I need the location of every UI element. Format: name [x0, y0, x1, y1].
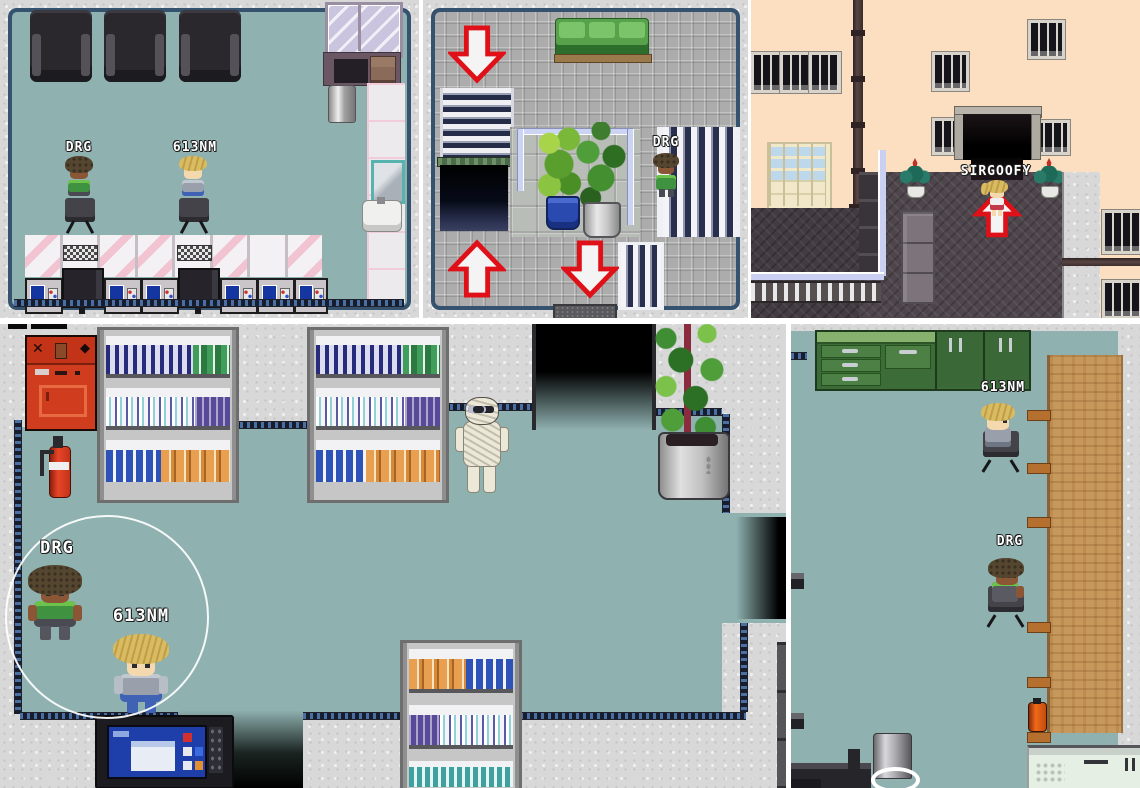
npc-mummy[interactable]	[455, 397, 507, 497]
extinguisher-valve	[53, 436, 63, 448]
extinguisher-valve	[1033, 698, 1041, 704]
stool-peg[interactable]	[1027, 517, 1051, 528]
exit-arrow-down-icon[interactable]	[561, 239, 619, 299]
chair-leg	[85, 220, 94, 234]
hair	[179, 156, 207, 171]
products-books	[106, 345, 193, 374]
hair	[981, 403, 1015, 421]
armchair	[30, 10, 92, 82]
player-613nm[interactable]	[176, 156, 210, 234]
desk-kneehole	[334, 59, 368, 83]
hair	[988, 558, 1024, 578]
wooden-table	[1047, 355, 1123, 733]
office-chair	[179, 198, 209, 222]
window	[751, 52, 783, 93]
panel-lobby: DRG	[423, 0, 748, 318]
fire-extinguisher	[1028, 702, 1047, 732]
armrest	[181, 34, 190, 76]
shelf-row	[106, 388, 230, 430]
desk	[323, 52, 401, 86]
player-sirgoofy[interactable]	[983, 180, 1011, 222]
door-handle	[949, 338, 952, 352]
machine-slot	[55, 371, 67, 375]
frame-top	[423, 0, 748, 9]
screen-bar	[113, 731, 129, 737]
drawer	[821, 359, 881, 372]
cabinet-doors	[937, 332, 983, 387]
products-purple	[409, 715, 440, 745]
machine-slot	[75, 371, 80, 375]
body	[990, 198, 1004, 210]
sofa-cushion	[619, 22, 645, 38]
doormat	[553, 304, 617, 318]
machine-valve	[55, 343, 67, 359]
player-drg[interactable]	[651, 153, 681, 197]
products-purple	[195, 397, 230, 426]
stacked-crates	[901, 210, 935, 304]
player-613nm[interactable]	[973, 403, 1025, 473]
player-label: 613NM	[173, 140, 217, 155]
plant-pot	[1041, 186, 1059, 198]
body	[985, 427, 1011, 447]
products-books	[316, 397, 405, 426]
ponytail	[981, 183, 989, 195]
body	[68, 180, 90, 196]
player-drg[interactable]	[980, 558, 1032, 628]
chair-leg	[66, 220, 75, 234]
door-lower-panes	[769, 180, 826, 206]
player-label: DRG	[997, 534, 1023, 549]
panel-store: ✕ ◆	[0, 324, 786, 788]
products-purple	[405, 397, 440, 426]
railing-right	[628, 129, 633, 225]
trash-can	[328, 85, 356, 123]
cross-icon: ✕	[32, 341, 44, 357]
chair-leg	[982, 459, 992, 472]
keyboard	[177, 245, 212, 261]
player-label: 613NM	[981, 380, 1025, 395]
entrance-column	[1031, 114, 1041, 160]
products-books	[106, 397, 195, 426]
lab-machine	[294, 278, 328, 314]
roof-pipe-vertical	[878, 150, 886, 276]
stool-peg[interactable]	[1027, 677, 1051, 688]
chair-leg	[199, 220, 208, 234]
drawer-latch	[46, 392, 49, 401]
vision-circle	[5, 515, 209, 719]
desk-drawers	[370, 56, 396, 84]
body	[182, 180, 204, 196]
sink	[362, 200, 402, 232]
player-label: DRG	[653, 135, 679, 150]
machine-handle	[35, 369, 49, 375]
desk-segment	[25, 235, 63, 277]
green-sofa	[555, 18, 649, 58]
entrance-doorway[interactable]	[963, 114, 1031, 160]
drawer	[821, 345, 881, 358]
folding-door	[767, 142, 832, 212]
armrest	[106, 34, 115, 76]
sidewalk-strip	[1062, 172, 1100, 318]
screen-button-blue	[195, 747, 203, 756]
appliance-counter[interactable]	[1027, 745, 1140, 788]
doorway-top[interactable]	[532, 324, 656, 430]
mummy-leg	[483, 463, 496, 493]
drawer-handle	[842, 349, 858, 353]
leg	[668, 189, 674, 197]
drawer	[821, 373, 881, 386]
plant-pot	[907, 186, 925, 198]
frame-right	[739, 0, 748, 318]
shelf-row	[409, 649, 513, 693]
products-packages	[161, 450, 230, 482]
armchair	[179, 10, 241, 82]
railing-left	[518, 129, 523, 191]
escalator-pit	[440, 165, 508, 231]
pot-soil	[666, 434, 718, 446]
armchair	[104, 10, 166, 82]
desk-segment	[288, 235, 323, 277]
lab-machine	[220, 278, 258, 314]
frame-left	[0, 0, 9, 318]
sofa-base	[554, 54, 652, 63]
player-label: SIRGOOFY	[961, 164, 1032, 179]
pipe-joint	[851, 30, 865, 36]
body	[992, 582, 1018, 602]
wall-stub	[791, 713, 804, 729]
fire-extinguisher	[40, 436, 74, 498]
products-green	[193, 345, 230, 374]
appliance-handle	[1132, 758, 1135, 771]
mummy-leg	[467, 463, 480, 493]
armrest	[32, 34, 41, 76]
chair-leg	[1015, 614, 1025, 627]
sofa-cushion	[559, 22, 585, 38]
hair	[65, 156, 93, 173]
plant-leaves	[1034, 166, 1064, 188]
console-terminal[interactable]	[95, 715, 234, 788]
panel-office: 613NM DRG	[791, 324, 1140, 788]
pipe-joint	[851, 76, 865, 82]
wall-stub	[791, 573, 804, 589]
panel-salon: DRG 613NM	[0, 0, 419, 318]
drawer-handle	[899, 350, 917, 354]
shelf-row	[106, 440, 230, 482]
shelf-row	[106, 336, 230, 378]
sofa-cushion	[589, 22, 615, 38]
escalator-lower[interactable]	[618, 242, 664, 310]
leg	[992, 210, 996, 216]
hair	[986, 180, 1008, 193]
stool-peg[interactable]	[1027, 732, 1051, 743]
pot-dots	[706, 456, 711, 474]
wide-drawer	[885, 345, 931, 369]
roof-fence	[751, 281, 881, 303]
door-glass-panes	[769, 144, 826, 180]
window	[1028, 20, 1065, 59]
appliance-handle	[1125, 758, 1128, 771]
shelf-row	[409, 761, 513, 787]
roof-pipe-horizontal	[751, 272, 884, 280]
leg	[659, 189, 665, 197]
drawer-handle	[842, 377, 858, 381]
panel-street: SIRGOOFY	[751, 0, 1140, 318]
desk-segment	[138, 235, 176, 277]
plant-leaves	[900, 166, 930, 188]
flower-plant	[900, 158, 930, 196]
store-shelf[interactable]	[307, 327, 449, 503]
door-handle	[999, 338, 1002, 352]
machine-drawer	[39, 385, 87, 417]
cabinet-doors	[983, 332, 1029, 387]
products-packages	[409, 659, 466, 689]
screenshot-collage: { "app": {"type": "pixel-rpg-screenshot-…	[0, 0, 1140, 788]
wall-base-edge	[14, 299, 404, 307]
shelf-row	[316, 388, 440, 430]
player-label: DRG	[66, 140, 92, 155]
screen-button	[183, 761, 192, 770]
office-chair	[65, 198, 95, 222]
screen-button	[183, 747, 192, 756]
console-side-panel	[209, 727, 223, 773]
products-books	[466, 659, 513, 689]
glass-cabinet	[325, 2, 403, 58]
products-books	[106, 450, 161, 482]
extinguisher-hose	[40, 450, 54, 476]
shelf-row	[316, 336, 440, 378]
escalator-down[interactable]	[440, 88, 514, 158]
mummy-eye-band	[468, 406, 494, 413]
drawer-handle	[842, 363, 858, 367]
exit-arrow-up-icon[interactable]	[448, 239, 506, 299]
dark-fixture	[31, 324, 67, 329]
leg	[998, 210, 1002, 216]
lab-machine	[257, 278, 295, 314]
wall-base-edge	[233, 421, 307, 429]
horizontal-pipe	[1062, 258, 1140, 266]
plant-pot-gray	[583, 202, 621, 238]
faucet	[377, 197, 385, 204]
plant-pot	[658, 432, 730, 500]
wall-base-edge	[791, 352, 807, 360]
products-green	[403, 345, 440, 374]
appliance-vents	[1035, 762, 1065, 784]
tall-potted-plant	[648, 324, 730, 499]
body	[656, 175, 676, 190]
products-books	[316, 450, 366, 482]
potted-plant-leaves	[575, 122, 627, 208]
counter-top	[817, 332, 935, 344]
mummy-body	[463, 421, 501, 467]
armrest	[155, 34, 164, 76]
player-drg[interactable]	[62, 156, 96, 234]
frame-right	[410, 0, 419, 318]
stool-peg[interactable]	[1027, 463, 1051, 474]
cabinet-divider	[358, 3, 361, 51]
desk-segment	[250, 235, 288, 277]
armrest	[230, 34, 239, 76]
trash-can	[873, 733, 910, 785]
chair-leg	[1010, 459, 1020, 472]
window	[932, 52, 969, 91]
wall-base-edge	[303, 712, 746, 720]
monitor-stand	[79, 306, 85, 314]
arm	[1016, 586, 1024, 598]
red-vending-machine[interactable]: ✕ ◆	[25, 335, 97, 431]
shelf-row	[409, 705, 513, 749]
flower-plant	[1034, 158, 1064, 196]
doorway-right[interactable]	[736, 517, 786, 619]
monitor-stand	[195, 306, 201, 314]
lab-machine	[141, 278, 179, 314]
shelf-edge-sliver	[777, 642, 786, 788]
dark-fixture	[8, 324, 27, 329]
shelf-row	[316, 440, 440, 482]
products-books	[316, 345, 403, 374]
products-teal	[409, 767, 513, 787]
counter-step	[791, 779, 821, 788]
stool-peg[interactable]	[1027, 410, 1051, 421]
pipe-joint	[851, 122, 865, 128]
screen-window	[131, 741, 175, 771]
plant-leaves	[648, 324, 730, 444]
armrest	[81, 34, 90, 76]
lab-machine	[25, 278, 63, 314]
wall-base-edge	[740, 623, 748, 712]
screen-button-orange	[195, 761, 203, 770]
player-label: 613NM	[113, 606, 169, 626]
window	[809, 52, 841, 93]
screen-button-red	[183, 733, 192, 742]
products-books	[440, 715, 513, 745]
keyboard	[63, 245, 98, 261]
hair	[653, 153, 679, 168]
frame-left	[423, 0, 432, 318]
desk-segment	[100, 235, 138, 277]
chair-leg	[180, 220, 189, 234]
lab-machine	[104, 278, 142, 314]
window	[780, 52, 812, 93]
store-shelf[interactable]	[400, 640, 522, 788]
exit-arrow-down-icon[interactable]	[448, 24, 506, 84]
chair-leg	[987, 614, 997, 627]
window	[1102, 280, 1140, 318]
door-handle	[1009, 338, 1012, 352]
products-packages	[366, 450, 440, 482]
console-screen	[107, 725, 207, 779]
appliance-slot	[1084, 760, 1108, 764]
door-handle	[959, 338, 962, 352]
trash-base-ring	[871, 767, 920, 788]
diamond-icon: ◆	[80, 341, 90, 356]
window	[1102, 210, 1140, 254]
player-label: DRG	[40, 538, 74, 558]
counter-post	[848, 749, 860, 788]
store-shelf[interactable]	[97, 327, 239, 503]
